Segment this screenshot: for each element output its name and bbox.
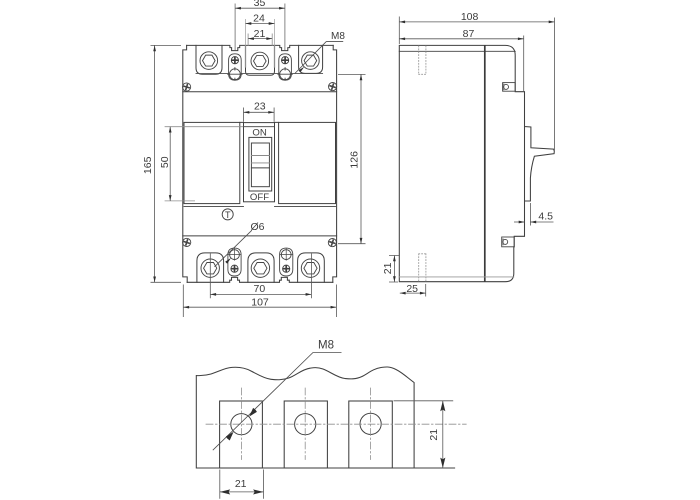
svg-text:T: T: [225, 210, 231, 220]
svg-text:35: 35: [254, 0, 266, 9]
svg-text:M8: M8: [331, 31, 345, 42]
svg-text:108: 108: [461, 11, 479, 23]
svg-text:24: 24: [253, 13, 265, 25]
svg-text:50: 50: [159, 156, 171, 168]
svg-text:126: 126: [349, 151, 361, 169]
svg-text:M8: M8: [318, 340, 334, 352]
svg-text:107: 107: [251, 297, 269, 309]
svg-text:87: 87: [463, 28, 475, 40]
svg-text:70: 70: [254, 283, 266, 295]
svg-text:21: 21: [235, 478, 247, 490]
svg-text:25: 25: [406, 283, 418, 295]
svg-text:21: 21: [254, 28, 266, 40]
svg-text:21: 21: [382, 262, 394, 274]
svg-text:4.5: 4.5: [538, 210, 553, 222]
svg-text:21: 21: [428, 429, 440, 441]
svg-text:165: 165: [142, 156, 154, 174]
svg-text:OFF: OFF: [250, 192, 269, 203]
svg-text:ON: ON: [252, 127, 266, 138]
svg-text:Ø6: Ø6: [251, 221, 265, 233]
svg-text:23: 23: [254, 101, 266, 113]
